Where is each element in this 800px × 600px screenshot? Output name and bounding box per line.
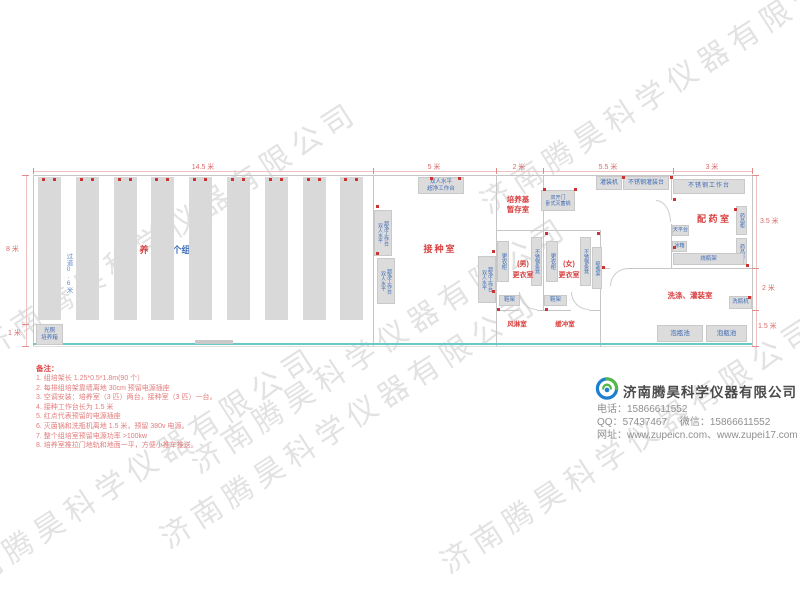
sterilizer: 双开门 卧式灭菌锅 [541,190,575,211]
dim-label-3-5m: 3.5 米 [760,216,779,226]
clean-bench-right: 双人水平 超净工作台 [478,256,496,303]
sterilizer-line2: 卧式灭菌锅 [545,201,570,207]
dim-label-1-5m: 1.5 米 [758,321,777,331]
washing-room-label: 洗涤、灌装室 [655,290,725,301]
steel-workbench: 不锈钢工作台 [673,179,745,194]
clean-bench-left-1: 双人水平 超净工作台 [374,210,392,256]
balance-table: 天平台 [672,225,689,236]
door-arc-pharmacy [656,200,671,222]
power-outlet-dot [42,178,45,181]
dimension-line-top [33,171,752,172]
power-outlet-dot [670,176,673,179]
culture-rack [76,177,99,320]
inoculation-room-label: 接种室 [415,242,465,255]
door-arc-washing [610,268,628,286]
soak-pool-2: 泡瓶池 [706,325,747,342]
clean-bench-left-2: 双人水平 超净工作台 [377,258,395,304]
media-room-line1: 培养基 [500,195,536,205]
web-label: 网址： [597,430,627,441]
power-outlet-dot [673,198,676,201]
media-room-label: 培养基 暂存室 [500,195,536,215]
culture-rack [151,177,174,320]
light-incubator-line2: 培养箱 [41,335,58,342]
dimension-tick [752,175,759,176]
dim-label-1m: 1 米 [8,328,21,338]
note-item: 8. 培养室推拉门地轨和地面一平，方便小推车推送。 [36,441,216,451]
power-outlet-dot [497,308,500,311]
power-outlet-dot [231,178,234,181]
light-incubator: 光照 培养箱 [36,324,63,345]
dimension-tick [496,168,497,174]
dimension-line-right [756,175,757,347]
web-value: www.zupeicn.com、www.zupei17.com [627,430,798,441]
company-web-line: 网址：www.zupeicn.com、www.zupei17.com [597,426,798,441]
note-item: 7. 整个组培室预留电源功率 >100kw [36,432,216,442]
power-outlet-dot [80,178,83,181]
power-outlet-dot [492,250,495,253]
medicine-cabinet-1: 药品柜 [736,206,747,235]
power-outlet-dot [597,232,600,235]
culture-rack [189,177,212,320]
power-outlet-dot [622,176,625,179]
bench-line2: 超净工作台 [386,269,392,294]
power-outlet-dot [269,178,272,181]
shoe-rack-male: 鞋架 [499,295,520,306]
dimension-tick [373,168,374,174]
wall-bottom [33,346,752,347]
power-outlet-dot [355,178,358,181]
dimension-tick [752,268,759,269]
wall-left [33,175,34,347]
note-item: 4. 接种工作台长为 1.5 米 [36,403,216,413]
pharmacy-room-label: 配 药 室 [688,212,738,225]
media-room-line2: 暂存室 [500,205,536,215]
wall-changing-top [496,230,601,231]
power-outlet-dot [673,246,676,249]
dim-label-14-5m: 14.5 米 [192,162,215,172]
door-arc-female [571,292,589,310]
power-outlet-dot [602,266,605,269]
note-item: 1. 组培架长 1.25*0.5*1.8m(90 个） [36,374,216,384]
dim-label-5m: 5 米 [428,162,441,172]
aisle-label: 过道0.6米 [62,232,74,314]
buffer-room-label: 缓冲室 [545,318,585,328]
filling-table: 不锈钢灌装台 [623,176,669,190]
bench-line2: 超净工作台 [487,267,493,292]
dim-label-2m: 2 米 [513,162,526,172]
female-room-name: 更衣室 [549,270,589,281]
power-outlet-dot [545,308,548,311]
sliding-door [195,340,233,344]
power-outlet-dot [376,205,379,208]
dimension-tick [752,168,753,174]
power-outlet-dot [166,178,169,181]
power-outlet-dot [543,188,546,191]
dimension-tick [22,175,29,176]
wall-washing-top-b [628,268,752,269]
male-room-name: 更衣室 [503,270,543,281]
power-outlet-dot [430,177,433,180]
dimension-tick [22,346,29,347]
notes-title: 备注： [36,363,59,374]
note-item: 5. 红点代表预留的电源插座 [36,412,216,422]
door-arc-male [519,292,537,310]
air-shower-label: 风淋室 [497,318,537,328]
male-tag: (男) [503,259,543,270]
power-outlet-dot [242,178,245,181]
culture-rack [340,177,363,320]
power-outlet-dot [376,252,379,255]
note-item: 2. 每排组培架靠墙离地 30cm 预留电源插座 [36,384,216,394]
note-item: 3. 空调安装：培养室（3 匹）两台，接种室（3 匹）一台。 [36,393,216,403]
culture-rack [38,177,61,320]
filling-machine: 灌装机 [596,176,622,190]
note-item: 6. 灭菌锅和洗瓶机离地 1.5 米，预留 380v 电源。 [36,422,216,432]
notes-list: 1. 组培架长 1.25*0.5*1.8m(90 个）2. 每排组培架靠墙离地 … [36,374,216,451]
power-outlet-dot [574,188,577,191]
wall-changing-bottom-c [589,310,601,311]
power-outlet-dot [344,178,347,181]
bottle-drying-rack: 晾瓶架 [592,247,602,289]
dimension-tick [752,310,759,311]
culture-rack [114,177,137,320]
dimension-tick [543,168,544,174]
power-outlet-dot [492,290,495,293]
dimension-tick [752,346,759,347]
soak-pool-1: 泡瓶池 [657,325,703,342]
company-logo [595,377,619,400]
power-outlet-dot [318,178,321,181]
dimension-tick [33,168,34,174]
wall-changing-bottom-b [537,310,571,311]
flask-rack: 烧瓶架 [673,253,744,265]
dim-label-2m-right: 2 米 [762,283,775,293]
power-outlet-dot [193,178,196,181]
male-changing-room-label: (男) 更衣室 [503,259,543,281]
power-outlet-dot [129,178,132,181]
power-outlet-dot [204,178,207,181]
floor-plan-page: 济南腾昊科学仪器有限公司 济南腾昊科学仪器有限公司 济南腾昊科学仪器有限公司 济… [0,0,800,600]
power-outlet-dot [458,177,461,180]
power-outlet-dot [748,296,751,299]
power-outlet-dot [545,232,548,235]
power-outlet-dot [118,178,121,181]
power-outlet-dot [155,178,158,181]
dim-label-8m: 8 米 [6,244,19,254]
female-changing-room-label: (女) 更衣室 [549,259,589,281]
female-tag: (女) [549,259,589,270]
culture-rack [265,177,288,320]
dimension-tick [673,168,674,174]
dimension-tick [22,324,29,325]
dim-label-5-5m: 5.5 米 [599,162,618,172]
bench-line2: 超净工作台 [427,186,455,193]
dim-label-3m: 3 米 [706,162,719,172]
power-outlet-dot [746,264,749,267]
company-name: 济南腾昊科学仪器有限公司 [623,381,797,401]
power-outlet-dot [91,178,94,181]
culture-rack [227,177,250,320]
power-outlet-dot [53,178,56,181]
dimension-line-left [26,175,27,347]
shoe-rack-female: 鞋架 [544,295,567,306]
sliding-door-track [33,343,752,345]
bench-line2: 超净工作台 [383,221,389,246]
power-outlet-dot [734,208,737,211]
culture-rack [303,177,326,320]
wall-culture-inoculation [373,175,374,346]
wall-right [752,175,753,347]
power-outlet-dot [280,178,283,181]
power-outlet-dot [307,178,310,181]
